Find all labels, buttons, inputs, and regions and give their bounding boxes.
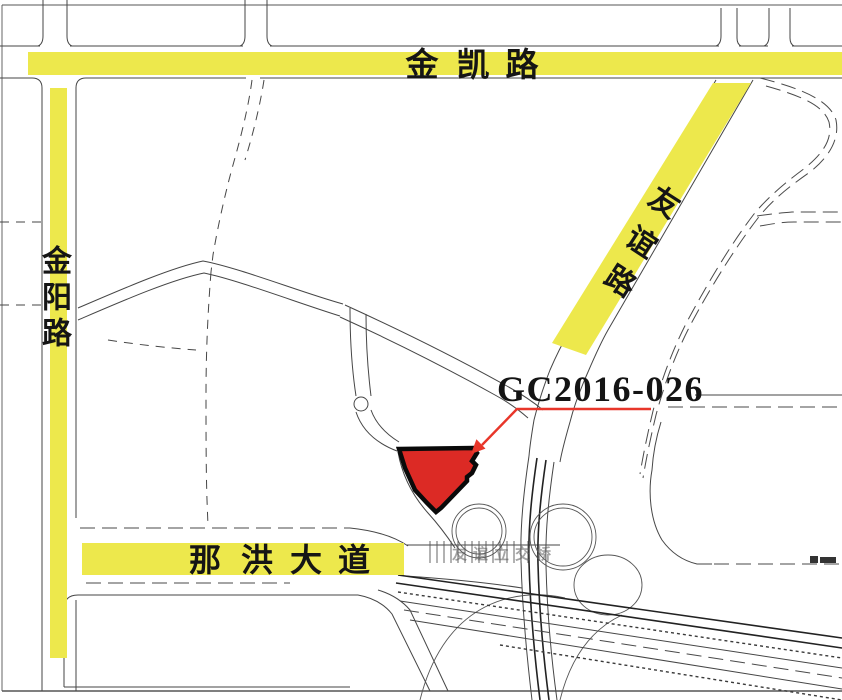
youyi-road-highlight	[552, 83, 751, 355]
leader-line	[482, 409, 651, 445]
parcel-annotation: GC2016-026	[399, 369, 704, 512]
expressway-line-5	[404, 610, 842, 678]
tiny-road-label-mark	[810, 556, 836, 563]
nahong-label-char-3: 大	[290, 542, 322, 578]
road-knot	[354, 397, 368, 411]
jinkai-label-char-1: 金	[405, 46, 440, 84]
stub-road-mid-top	[240, 0, 272, 46]
local-road-upper-edge	[78, 261, 343, 308]
jinyang-label-char-2: 阳	[42, 282, 72, 315]
parcel-code-label: GC2016-026	[497, 369, 704, 409]
expressway-line-2	[396, 583, 842, 648]
jinyang-label-char-3: 路	[42, 318, 73, 351]
parallel-road-east-2	[640, 86, 830, 474]
stub-road-left-top	[38, 0, 72, 46]
dashed-road-upper-2	[245, 80, 264, 160]
stub-road-right-top-1	[716, 8, 741, 46]
youyi-south-line-3	[538, 460, 549, 700]
youyi-south-line-4	[546, 462, 557, 700]
jinyang-road-highlight	[50, 88, 67, 658]
dashed-road-upper	[211, 80, 252, 272]
nahong-label-char-1: 那	[189, 542, 221, 578]
youyi-south-line-1	[521, 456, 532, 700]
southeast-block-corner	[650, 422, 712, 564]
dashed-connector	[108, 340, 196, 350]
land-parcel-location-map: 友谊立交桥 金 凯 路 金 阳 路 友 谊 路 那 洪 大 道 GC2016-0…	[0, 0, 842, 700]
ramp-southwest	[358, 590, 448, 691]
side-street-dashes-left	[0, 222, 42, 305]
jinkai-label-char-2: 凯	[457, 47, 490, 84]
loop-arc-south	[560, 615, 622, 700]
jinyang-label-char-1: 金	[41, 245, 73, 279]
jinkai-label-char-3: 路	[506, 47, 540, 84]
parallel-road-east-1	[643, 78, 837, 478]
nahong-label-char-4: 道	[338, 542, 370, 578]
map-canvas: 友谊立交桥 金 凯 路 金 阳 路 友 谊 路 那 洪 大 道 GC2016-0…	[0, 0, 842, 700]
highlighted-roads	[28, 52, 842, 658]
loop-ramp-circle-3	[574, 555, 642, 615]
dashed-road-lower	[206, 272, 211, 526]
nahong-bottom-edge	[64, 595, 358, 687]
nahong-label-char-2: 洪	[241, 542, 273, 578]
east-block-road-dashed	[757, 212, 842, 226]
expressway-line-3	[398, 592, 842, 658]
road-branch-vertical	[350, 308, 371, 396]
stub-road-right-top-2	[764, 8, 794, 46]
road-curve-to-parcel	[356, 410, 399, 451]
parcel-polygon	[399, 448, 477, 512]
interchange-complex: 友谊立交桥	[396, 456, 842, 700]
expressway-line-4	[400, 601, 842, 668]
interchange-label: 友谊立交桥	[452, 545, 557, 563]
expressway-line-6	[410, 620, 842, 689]
